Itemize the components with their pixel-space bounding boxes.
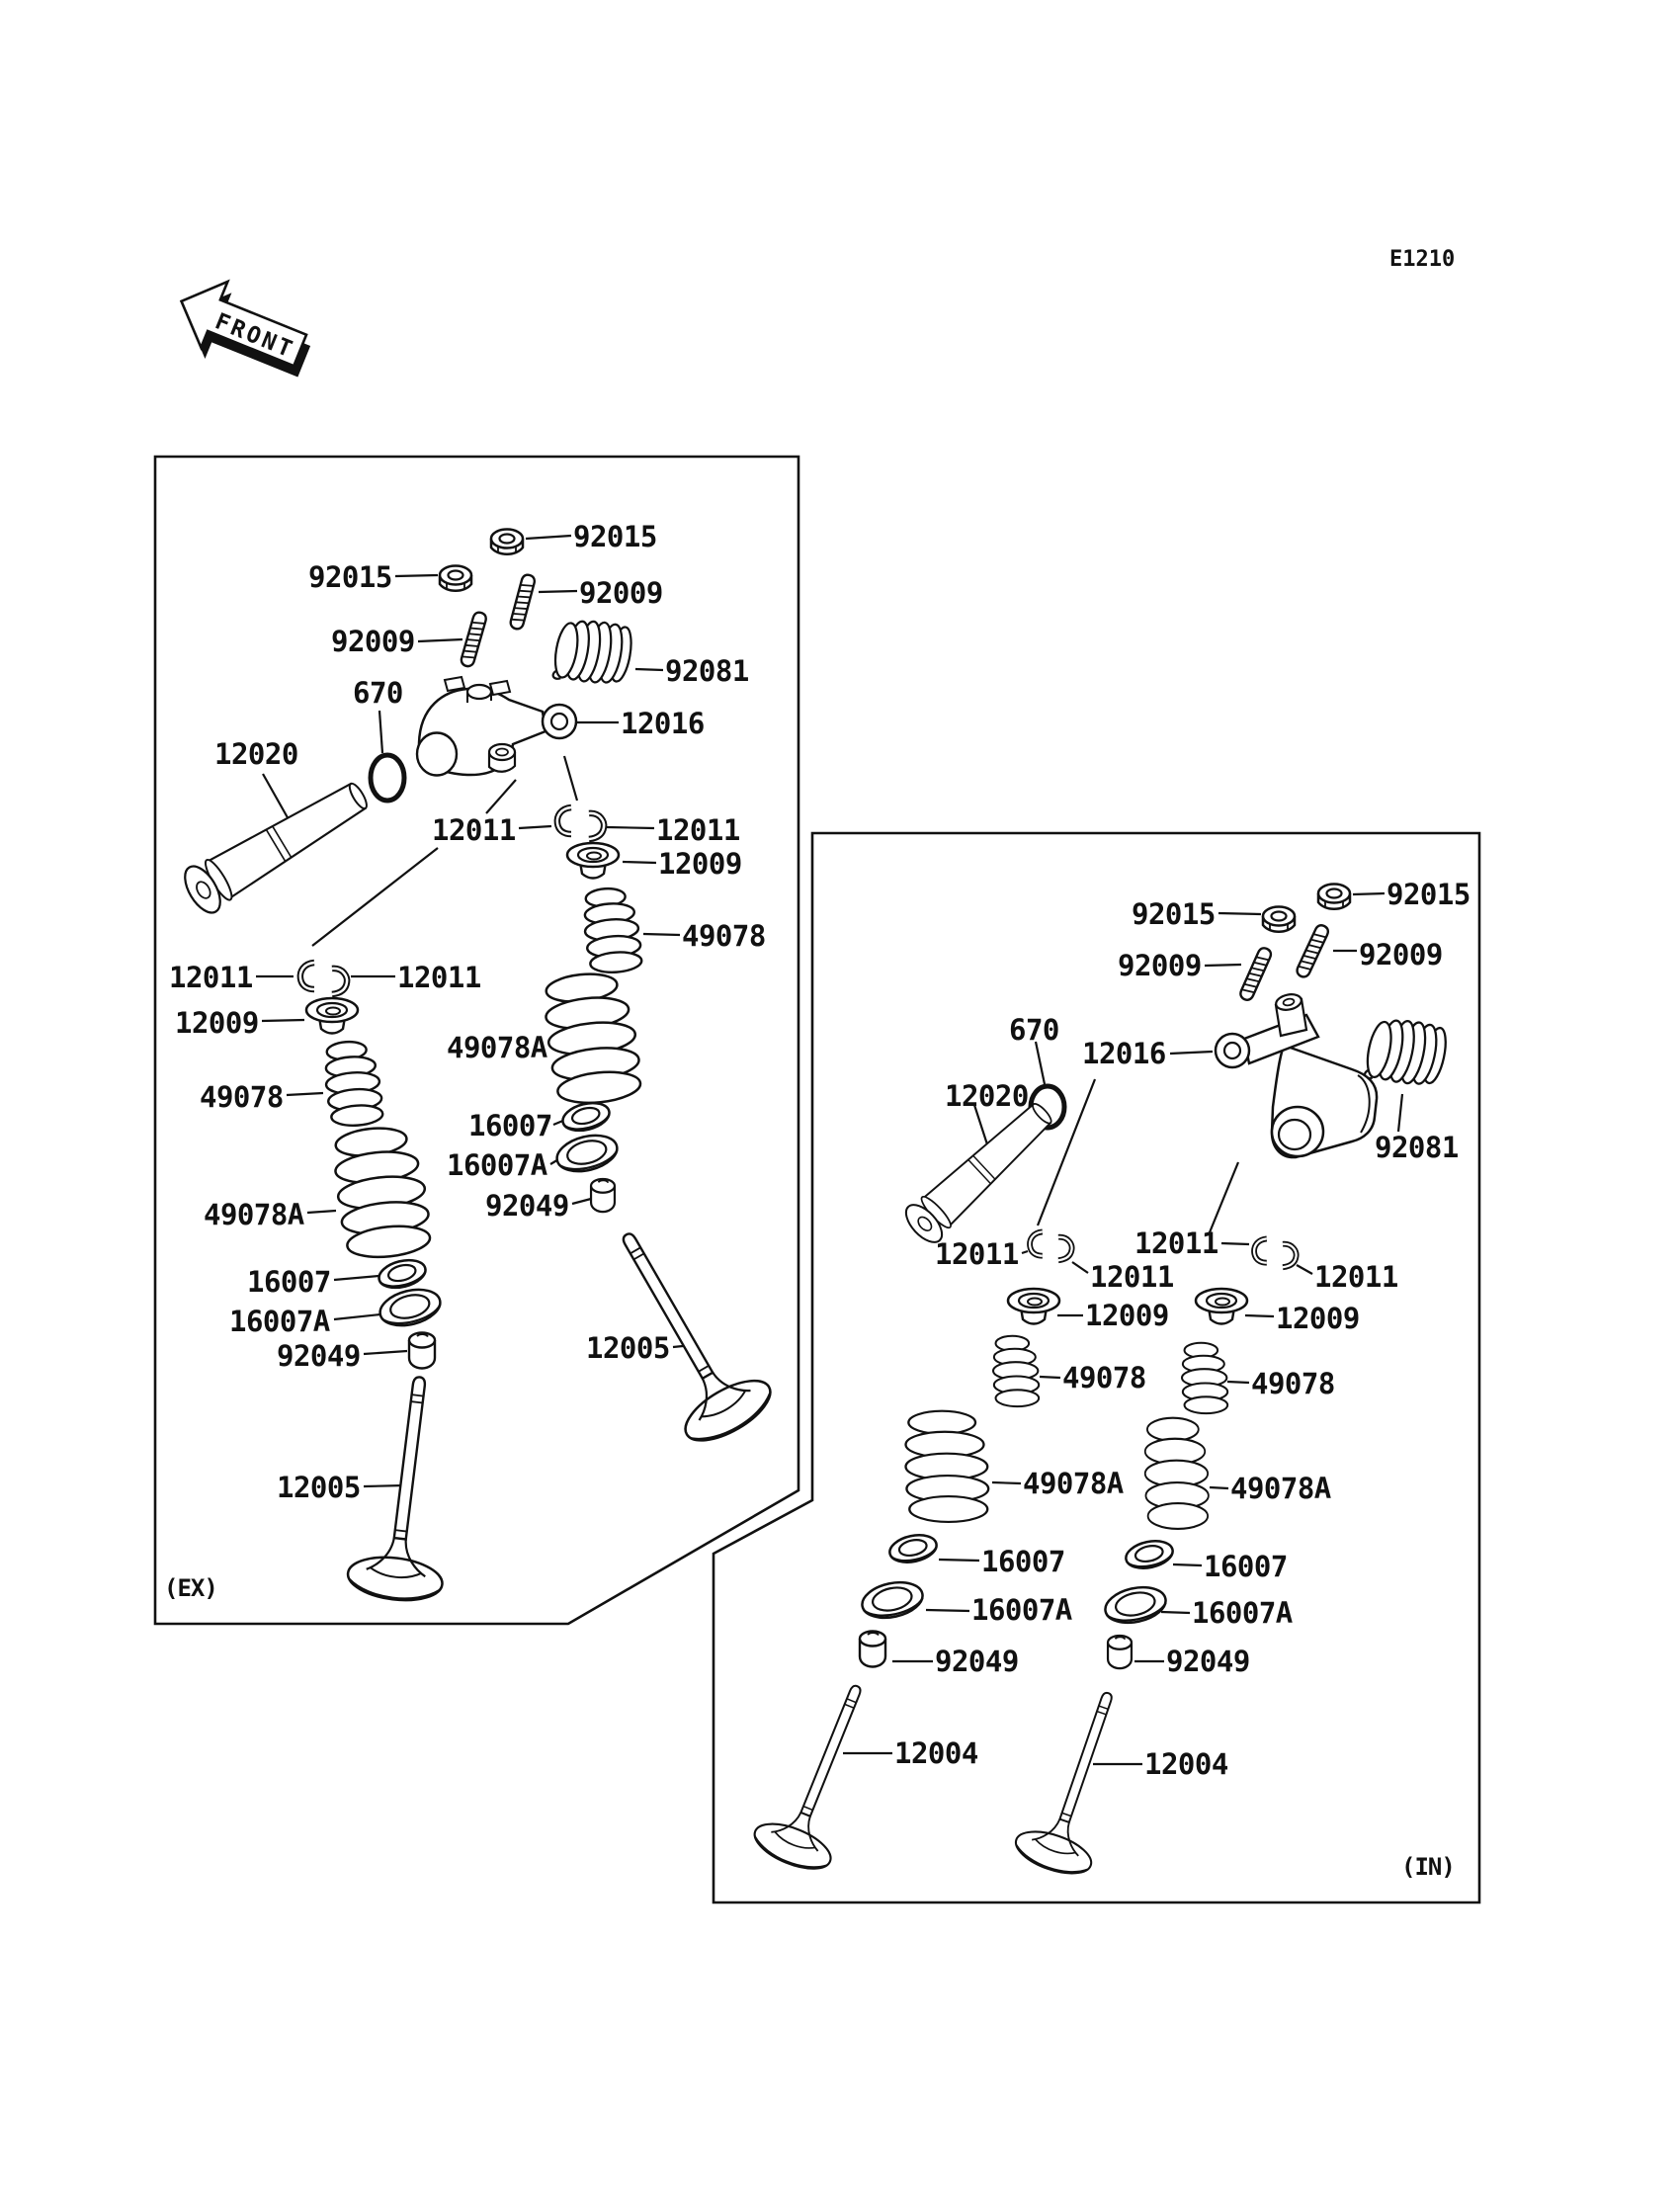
part-label: 92009 [579, 579, 663, 608]
part-label: 12011 [1090, 1263, 1174, 1292]
leader-line [939, 1560, 979, 1561]
rocker-spring-drawing [551, 615, 634, 690]
leader-line [1161, 1612, 1190, 1613]
inner-valve-spring-drawing [1182, 1343, 1227, 1413]
part-label: 12011 [935, 1240, 1019, 1269]
part-label: 92049 [485, 1192, 569, 1221]
part-label: 670 [1009, 1016, 1059, 1045]
spring-seat-drawing [560, 1099, 613, 1136]
part-label: 92081 [665, 657, 749, 686]
inner-valve-spring-drawing [323, 1040, 383, 1128]
part-label: 49078 [200, 1083, 284, 1112]
part-label: 16007A [229, 1308, 330, 1336]
leader-line [418, 639, 462, 641]
adjusting-screw-drawing [509, 573, 536, 630]
part-label: 12011 [397, 964, 481, 992]
intake-valve-drawing [1011, 1680, 1146, 1882]
part-label: 92009 [1359, 941, 1443, 970]
split-keeper-drawing [300, 963, 347, 994]
ex-parts [178, 530, 780, 1606]
leader-line [635, 669, 663, 670]
part-label: 16007 [247, 1268, 331, 1297]
leader-line [262, 1020, 304, 1021]
spring-seat-washer-drawing [553, 1130, 621, 1177]
leader-line [395, 575, 438, 576]
part-label: 16007A [1192, 1599, 1293, 1628]
leader-line [1173, 1564, 1202, 1565]
exhaust-valve-drawing [346, 1372, 467, 1606]
leader-line [926, 1610, 969, 1611]
rocker-spring-drawing [1363, 1013, 1450, 1092]
part-label: 12011 [432, 816, 516, 845]
split-keeper-drawing [1254, 1238, 1297, 1267]
leader-line [1205, 965, 1241, 966]
spring-retainer-drawing [567, 843, 619, 879]
part-label: 12005 [586, 1334, 670, 1363]
inner-valve-spring-drawing [582, 887, 642, 974]
leader-line [1170, 1052, 1213, 1054]
leader-line [1398, 1094, 1402, 1132]
part-label: 16007A [447, 1151, 547, 1180]
locknut-drawing [440, 566, 471, 591]
parts-diagram-page: FRONT E1210 (EX) (IN) 920159201592009920… [0, 0, 1680, 2197]
split-keeper-drawing [557, 807, 604, 839]
part-label: 12011 [1314, 1263, 1398, 1292]
part-label: 12009 [1085, 1302, 1169, 1330]
part-label: 16007 [1204, 1553, 1288, 1581]
leader-line [643, 934, 680, 935]
spring-seat-drawing [377, 1256, 429, 1293]
part-label: 92015 [1132, 900, 1216, 929]
spring-retainer-drawing [1008, 1289, 1059, 1324]
adjusting-screw-drawing [460, 611, 487, 667]
adjusting-screw-drawing [1238, 946, 1273, 1001]
part-label: 92009 [331, 628, 415, 656]
part-label: 12016 [621, 710, 705, 738]
part-label: 92009 [1118, 952, 1202, 980]
part-label: 12011 [169, 964, 253, 992]
part-label: 12009 [1276, 1305, 1360, 1333]
rocker-shaft-drawing [178, 772, 376, 919]
part-label: 92081 [1375, 1134, 1459, 1162]
leader-line [607, 827, 654, 828]
leader-line [1038, 1079, 1095, 1225]
leader-line [623, 862, 656, 863]
leader-line [572, 1199, 591, 1204]
part-label: 49078 [1062, 1364, 1146, 1393]
part-label: 670 [353, 679, 403, 708]
part-label: 12016 [1082, 1040, 1166, 1068]
valve-stem-cap-drawing [1108, 1636, 1132, 1668]
part-label: 12004 [894, 1739, 978, 1768]
leader-line [1218, 913, 1261, 914]
part-label: 92049 [935, 1648, 1019, 1676]
locknut-drawing [491, 530, 523, 554]
leader-line [564, 756, 577, 801]
leader-line [1040, 1377, 1060, 1378]
part-label: 92015 [573, 523, 657, 551]
leader-line [1210, 1487, 1228, 1488]
part-label: 92049 [1166, 1648, 1250, 1676]
part-label: 49078A [204, 1201, 304, 1229]
leader-line [379, 711, 382, 753]
leader-line [1227, 1382, 1249, 1383]
leader-line [312, 848, 438, 946]
leader-line [1022, 1251, 1028, 1253]
spring-seat-washer-drawing [377, 1284, 444, 1331]
valve-stem-cap-drawing [591, 1179, 615, 1212]
in-box-caption: (IN) [1401, 1855, 1455, 1879]
o-ring-drawing [371, 755, 404, 801]
spring-seat-washer-drawing [1102, 1582, 1169, 1628]
locknut-drawing [1263, 907, 1295, 932]
leader-line [287, 1093, 323, 1095]
split-keeper-drawing [1030, 1231, 1072, 1260]
leader-line [992, 1482, 1021, 1483]
part-label: 49078A [447, 1034, 547, 1062]
valve-stem-cap-drawing [409, 1333, 435, 1369]
leader-line [486, 780, 516, 813]
front-direction-arrow: FRONT [165, 268, 321, 393]
part-label: 12011 [1134, 1229, 1218, 1258]
part-label: 12020 [214, 740, 298, 769]
part-label: 49078 [1251, 1370, 1335, 1398]
spring-retainer-drawing [306, 998, 358, 1034]
valve-stem-cap-drawing [860, 1632, 885, 1667]
part-label: 12009 [658, 850, 742, 879]
leader-line [334, 1276, 378, 1280]
leader-line [519, 826, 551, 828]
leader-line [1072, 1262, 1088, 1273]
spring-retainer-drawing [1196, 1289, 1247, 1324]
leader-line [364, 1485, 405, 1486]
part-label: 16007 [468, 1112, 552, 1141]
intake-valve-drawing [749, 1671, 895, 1878]
locknut-drawing [1318, 885, 1350, 909]
spring-seat-drawing [887, 1531, 939, 1565]
part-label: 49078 [682, 922, 766, 951]
spring-seat-drawing [1124, 1537, 1175, 1571]
leader-line [307, 1211, 336, 1213]
part-label: 12020 [945, 1082, 1029, 1111]
leader-line [1297, 1265, 1312, 1274]
leader-line [364, 1351, 407, 1354]
part-label: 16007A [971, 1596, 1072, 1625]
part-label: 12004 [1144, 1750, 1228, 1779]
leader-line [1036, 1042, 1045, 1084]
part-label: 12011 [656, 816, 740, 845]
outer-valve-spring-drawing [1145, 1418, 1209, 1529]
outer-valve-spring-drawing [906, 1411, 989, 1522]
part-label: 92015 [308, 563, 392, 592]
adjusting-screw-drawing [1295, 923, 1329, 978]
rocker-shaft-drawing [899, 1094, 1060, 1248]
leader-line [1245, 1315, 1274, 1316]
outer-valve-spring-drawing [542, 970, 642, 1107]
leader-line [1210, 1162, 1238, 1232]
part-label: 12009 [175, 1009, 259, 1038]
leader-line [1221, 1243, 1249, 1244]
part-label: 49078A [1230, 1475, 1331, 1503]
ex-box-caption: (EX) [164, 1576, 217, 1600]
part-label: 16007 [981, 1548, 1065, 1576]
part-label: 92015 [1386, 881, 1470, 909]
rocker-arm-drawing [1216, 992, 1377, 1157]
part-label: 49078A [1023, 1470, 1124, 1498]
outer-valve-spring-drawing [331, 1124, 432, 1261]
inner-valve-spring-drawing [993, 1336, 1039, 1406]
leader-line [334, 1314, 380, 1319]
part-label: 92049 [277, 1342, 361, 1371]
leader-line [1353, 893, 1385, 894]
rocker-arm-drawing [417, 677, 576, 776]
part-label: 12005 [277, 1474, 361, 1502]
leader-line [539, 591, 577, 592]
spring-seat-washer-drawing [859, 1577, 926, 1623]
leader-line [526, 536, 571, 539]
diagram-code: E1210 [1389, 249, 1455, 271]
